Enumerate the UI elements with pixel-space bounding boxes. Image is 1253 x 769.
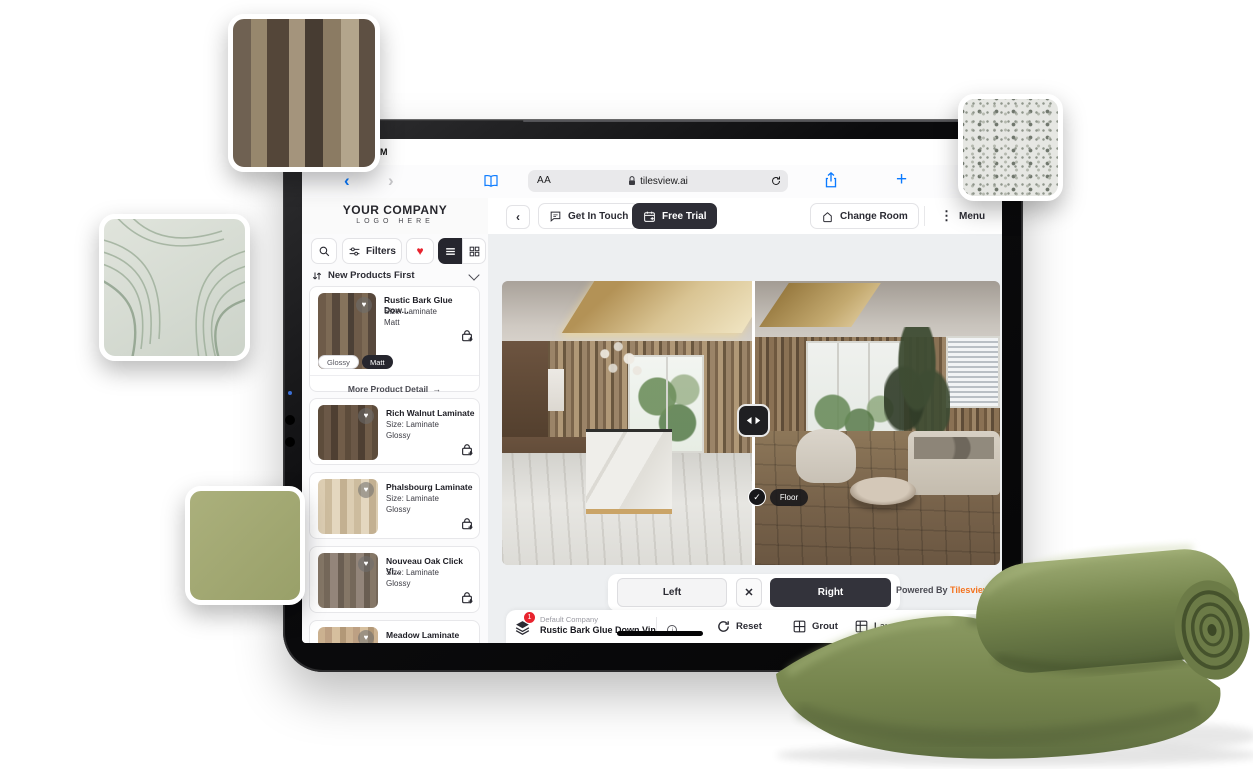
room-pane-left[interactable]	[502, 281, 754, 565]
product-card[interactable]: ♥ Rustic Bark Glue Dow... Size: Laminate…	[309, 286, 480, 392]
chat-icon	[549, 210, 562, 223]
marketing-composition: PM ‹ › AA tilesview.ai	[0, 0, 1253, 769]
leaf-pattern-art	[104, 219, 245, 356]
wood-plank-swatch	[228, 14, 380, 172]
logo-line1: YOUR COMPANY	[302, 203, 488, 217]
free-trial-button[interactable]: Free Trial	[632, 203, 717, 229]
chevron-left-icon: ‹	[516, 210, 520, 224]
lock-icon	[628, 176, 636, 186]
product-size: Size: Laminate	[386, 494, 439, 503]
more-product-detail-link[interactable]: More Product Detail →	[310, 379, 479, 397]
terrazzo-swatch	[958, 94, 1063, 201]
forward-icon[interactable]: ›	[388, 170, 394, 192]
heart-icon: ♥	[416, 245, 423, 257]
address-bar[interactable]: AA tilesview.ai	[528, 170, 788, 192]
finish-chip-matt[interactable]: Matt	[362, 355, 393, 369]
change-room-label: Change Room	[840, 211, 908, 222]
close-compare-button[interactable]: ✕	[736, 578, 762, 607]
floor-check-icon[interactable]: ✓	[748, 488, 766, 506]
armchair	[796, 429, 856, 483]
close-icon: ✕	[744, 586, 753, 599]
room-pane-right[interactable]	[754, 281, 1000, 565]
sofa	[908, 431, 1000, 495]
product-sidebar: Filters ♥	[302, 234, 489, 643]
favorite-heart-icon[interactable]: ♥	[358, 630, 374, 643]
add-to-cart-icon[interactable]	[460, 517, 474, 531]
list-icon	[444, 245, 457, 258]
product-finish: Glossy	[386, 505, 410, 514]
add-to-cart-icon[interactable]	[460, 329, 474, 343]
living-window-blinds	[946, 336, 1000, 408]
company-name: Default Company	[540, 615, 598, 624]
refresh-icon[interactable]	[770, 175, 782, 187]
product-card[interactable]: ♥ Rich Walnut Laminate Size: Laminate Gl…	[309, 398, 480, 465]
product-card[interactable]: ♥ Phalsbourg Laminate Size: Laminate Glo…	[309, 472, 480, 539]
share-icon[interactable]	[822, 171, 840, 189]
product-title: Meadow Laminate	[386, 630, 459, 640]
product-finish: Glossy	[386, 431, 410, 440]
search-button[interactable]	[311, 238, 337, 264]
product-finish: Glossy	[386, 579, 410, 588]
kebab-menu-icon: ⋮	[940, 208, 953, 224]
room-icon	[821, 210, 834, 223]
kitchen-island	[586, 429, 672, 514]
back-icon[interactable]: ‹	[344, 170, 350, 192]
product-size: Size: Laminate	[386, 568, 439, 577]
logo-line2: LOGO HERE	[302, 218, 488, 225]
app-header: YOUR COMPANY LOGO HERE ‹ Get In Touch	[302, 198, 1002, 235]
product-title: Rich Walnut Laminate	[386, 408, 474, 418]
floor-surface-tag[interactable]: Floor	[770, 489, 808, 506]
kitchen-wood-ceiling-panel	[562, 281, 754, 333]
indoor-plant	[884, 327, 950, 447]
filters-icon	[348, 245, 361, 258]
chevron-down-icon	[468, 269, 479, 280]
favorites-button[interactable]: ♥	[406, 238, 434, 264]
product-size: Size: Laminate	[386, 642, 439, 643]
grid-view-button[interactable]	[462, 238, 486, 264]
green-solid-swatch	[185, 486, 305, 605]
change-room-button[interactable]: Change Room	[810, 203, 919, 229]
tablet-camera-dot	[288, 391, 292, 395]
tablet-volume-button	[285, 437, 295, 447]
list-view-button[interactable]	[438, 238, 462, 264]
url-display: tilesview.ai	[528, 170, 788, 192]
filters-label: Filters	[366, 246, 396, 257]
add-to-cart-icon[interactable]	[460, 443, 474, 457]
product-card[interactable]: ♥ Nouveau Oak Click Vi... Size: Laminate…	[309, 546, 480, 613]
carpet-roll-image	[768, 538, 1253, 769]
url-text: tilesview.ai	[640, 176, 688, 187]
calendar-icon	[643, 210, 656, 223]
bookmarks-icon[interactable]	[482, 172, 500, 190]
reset-icon	[716, 619, 731, 634]
divider	[310, 375, 479, 376]
new-tab-icon[interactable]: +	[896, 169, 907, 191]
filters-button[interactable]: Filters	[342, 238, 402, 264]
left-right-arrows-icon	[744, 411, 763, 430]
room-comparison-view: ✓ Floor	[502, 281, 1000, 565]
selected-count-badge: 1	[523, 611, 536, 624]
search-icon	[318, 245, 331, 258]
home-indicator[interactable]	[617, 631, 703, 636]
apply-left-button[interactable]: Left	[617, 578, 727, 607]
grid-icon	[468, 245, 481, 258]
get-in-touch-button[interactable]: Get In Touch	[538, 203, 639, 229]
product-card[interactable]: ♥ Meadow Laminate Size: Laminate	[309, 620, 480, 643]
coffee-table	[850, 477, 916, 505]
menu-button[interactable]: ⋮ Menu	[934, 203, 991, 229]
browser-toolbar: ‹ › AA tilesview.ai	[302, 165, 1002, 199]
divider	[924, 206, 925, 226]
tablet-volume-button	[285, 415, 295, 425]
compare-slider-handle[interactable]	[737, 404, 770, 437]
sort-label: New Products First	[328, 270, 415, 281]
favorite-heart-icon[interactable]: ♥	[358, 482, 374, 498]
sofa-pillows	[914, 437, 994, 459]
get-in-touch-label: Get In Touch	[568, 211, 628, 222]
menu-label: Menu	[959, 211, 985, 222]
sidebar-collapse-button[interactable]: ‹	[506, 205, 530, 229]
sort-icon	[311, 270, 323, 282]
reset-button[interactable]: Reset	[716, 610, 762, 643]
favorite-heart-icon[interactable]: ♥	[358, 408, 374, 424]
tablet-antenna-line	[523, 120, 993, 122]
leaf-pattern-swatch	[99, 214, 250, 361]
arrow-right-icon: →	[433, 384, 442, 394]
product-size: Size: Laminate	[386, 420, 439, 429]
chandelier	[594, 337, 648, 385]
free-trial-label: Free Trial	[662, 211, 706, 222]
sort-dropdown[interactable]: New Products First	[302, 268, 488, 286]
product-title: Phalsbourg Laminate	[386, 482, 472, 492]
add-to-cart-icon[interactable]	[460, 591, 474, 605]
favorite-heart-icon[interactable]: ♥	[356, 297, 372, 313]
favorite-heart-icon[interactable]: ♥	[358, 556, 374, 572]
company-logo: YOUR COMPANY LOGO HERE	[302, 198, 488, 234]
product-finish: Matt	[384, 318, 400, 327]
finish-chip-glossy[interactable]: Glossy	[318, 355, 359, 369]
product-size: Size: Laminate	[384, 307, 437, 316]
